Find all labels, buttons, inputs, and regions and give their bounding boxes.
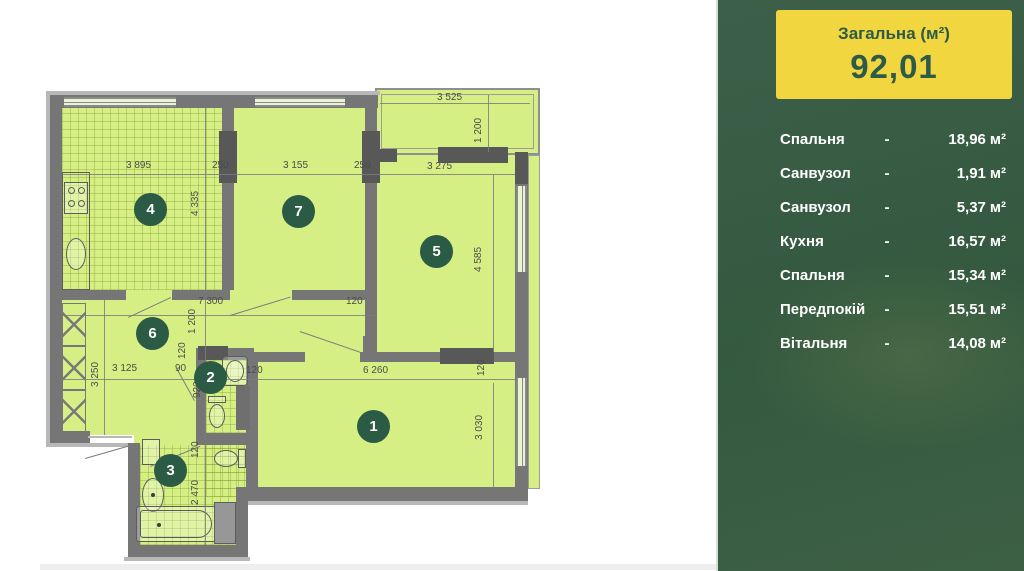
dimension-label: 120 xyxy=(190,441,201,458)
wall-band xyxy=(124,557,250,561)
wall-bath-right xyxy=(236,487,248,557)
side-balcony-strip xyxy=(528,155,540,489)
floor-plan: 3 895 250 3 155 250 3 275 3 525 7 300 12… xyxy=(0,0,716,571)
dimension-label: 120 xyxy=(476,359,487,376)
room-area: 15,51м² xyxy=(902,301,1006,318)
dimension-label: 250 xyxy=(212,160,229,171)
wall-right-block xyxy=(515,152,528,184)
room-name: Передпокій xyxy=(780,301,872,318)
dimension-label: 90 xyxy=(175,363,186,374)
bath-sink-drain xyxy=(151,493,155,497)
bathtub-drain xyxy=(157,523,161,527)
shaft-cell xyxy=(62,390,86,433)
washing-machine xyxy=(214,502,236,544)
dimension-label: 3 125 xyxy=(112,363,137,374)
room-area: 1,91м² xyxy=(902,165,1006,182)
dimension-line xyxy=(380,103,530,104)
separator: - xyxy=(872,267,902,284)
wc-toilet-bowl xyxy=(209,404,225,428)
unit-label: м² xyxy=(990,233,1006,250)
separator: - xyxy=(872,131,902,148)
stove-burner xyxy=(68,187,75,194)
total-area-value: 92,01 xyxy=(776,48,1012,86)
legend-row-5: Спальня - 15,34м² xyxy=(718,258,1024,292)
dimension-label: 1 200 xyxy=(187,309,198,334)
wc-toilet-tank xyxy=(208,396,226,403)
room-name: Спальня xyxy=(780,267,872,284)
dimension-label: 6 260 xyxy=(363,365,388,376)
legend-row-7: Вітальня - 14,08м² xyxy=(718,326,1024,360)
dimension-line xyxy=(488,95,489,152)
legend-row-6: Передпокій - 15,51м² xyxy=(718,292,1024,326)
dimension-label: 4 585 xyxy=(473,247,484,272)
unit-label: м² xyxy=(990,199,1006,216)
dimension-label: 7 300 xyxy=(198,296,223,307)
dimension-line xyxy=(104,300,105,435)
dimension-line xyxy=(493,175,494,352)
column xyxy=(219,131,237,183)
unit-label: м² xyxy=(990,267,1006,284)
legend-row-4: Кухня - 16,57м² xyxy=(718,224,1024,258)
legend-row-3: Санвузол - 5,37м² xyxy=(718,190,1024,224)
stove-burner xyxy=(68,200,75,207)
unit-label: м² xyxy=(990,301,1006,318)
wc-boiler xyxy=(236,386,250,430)
dimension-label: 3 250 xyxy=(90,362,101,387)
dimension-label: 250 xyxy=(354,160,371,171)
separator: - xyxy=(872,165,902,182)
legend-row-2: Санвузол - 1,91м² xyxy=(718,156,1024,190)
stove-burner xyxy=(78,200,85,207)
room-name: Санвузол xyxy=(780,165,872,182)
window xyxy=(516,186,527,272)
wall-band xyxy=(248,501,528,505)
dimension-label: 3 525 xyxy=(437,92,462,103)
room-number-badge-6: 6 xyxy=(136,317,169,350)
room-number-badge-4: 4 xyxy=(134,193,167,226)
total-area-label: Загальна (м²) xyxy=(776,24,1012,44)
floor-plan-page: 3 895 250 3 155 250 3 275 3 525 7 300 12… xyxy=(0,0,1024,571)
room-number-badge-1: 1 xyxy=(357,410,390,443)
dimension-label: 4 335 xyxy=(190,191,201,216)
room-area: 14,08м² xyxy=(902,335,1006,352)
dimension-line xyxy=(62,315,377,316)
wall-left xyxy=(50,95,62,443)
window xyxy=(516,378,527,466)
bath-toilet-tank xyxy=(238,449,246,468)
window xyxy=(255,97,345,107)
balcony-wall-block xyxy=(375,149,397,162)
dimension-line xyxy=(62,174,515,175)
bathtub-inner xyxy=(140,510,212,538)
dimension-line xyxy=(493,383,494,487)
stove xyxy=(64,182,88,214)
dimension-label: 120 xyxy=(346,296,363,307)
shaft-cell xyxy=(62,303,86,346)
room-number-badge-5: 5 xyxy=(420,235,453,268)
room-area: 15,34м² xyxy=(902,267,1006,284)
dimension-line xyxy=(205,300,206,545)
wall-stub xyxy=(363,336,372,354)
unit-label: м² xyxy=(990,131,1006,148)
dimension-label: 120 xyxy=(177,342,188,359)
dimension-label: 2 470 xyxy=(190,480,201,505)
summary-panel: Загальна (м²) 92,01 Спальня - 18,96м² Са… xyxy=(716,0,1024,571)
wall-hall-top-a xyxy=(62,290,126,300)
room-name: Кухня xyxy=(780,233,872,250)
dimension-line xyxy=(62,379,515,380)
kitchen-sink xyxy=(66,238,86,270)
dimension-label: 3 030 xyxy=(474,415,485,440)
bathtub xyxy=(136,506,216,542)
separator: - xyxy=(872,335,902,352)
room-area: 18,96м² xyxy=(902,131,1006,148)
room-area: 16,57м² xyxy=(902,233,1006,250)
room-number-badge-2: 2 xyxy=(194,361,227,394)
page-bottom-band xyxy=(40,564,716,570)
dimension-line xyxy=(205,108,206,290)
room-area: 5,37м² xyxy=(902,199,1006,216)
separator: - xyxy=(872,301,902,318)
wall-bath-bottom xyxy=(128,545,248,557)
room-name: Санвузол xyxy=(780,199,872,216)
wall-bedroom1-bottom xyxy=(248,487,528,501)
dimension-label: 120 xyxy=(246,365,263,376)
dimension-label: 3 275 xyxy=(427,161,452,172)
separator: - xyxy=(872,233,902,250)
room-legend: Спальня - 18,96м² Санвузол - 1,91м² Санв… xyxy=(718,122,1024,360)
room-name: Спальня xyxy=(780,131,872,148)
stove-burner xyxy=(78,187,85,194)
entry-sill xyxy=(88,436,132,438)
ventilation-shaft xyxy=(62,303,86,433)
dimension-label: 3 895 xyxy=(126,160,151,171)
window xyxy=(64,97,176,107)
shaft-cell xyxy=(62,346,86,389)
room-number-badge-7: 7 xyxy=(282,195,315,228)
bath-toilet-bowl xyxy=(214,450,238,467)
unit-label: м² xyxy=(990,165,1006,182)
room-number-badge-3: 3 xyxy=(154,454,187,487)
unit-label: м² xyxy=(990,335,1006,352)
separator: - xyxy=(872,199,902,216)
dimension-label: 3 155 xyxy=(283,160,308,171)
room-name: Вітальня xyxy=(780,335,872,352)
dimension-label: 1 200 xyxy=(473,118,484,143)
total-area-card: Загальна (м²) 92,01 xyxy=(776,10,1012,99)
legend-row-1: Спальня - 18,96м² xyxy=(718,122,1024,156)
